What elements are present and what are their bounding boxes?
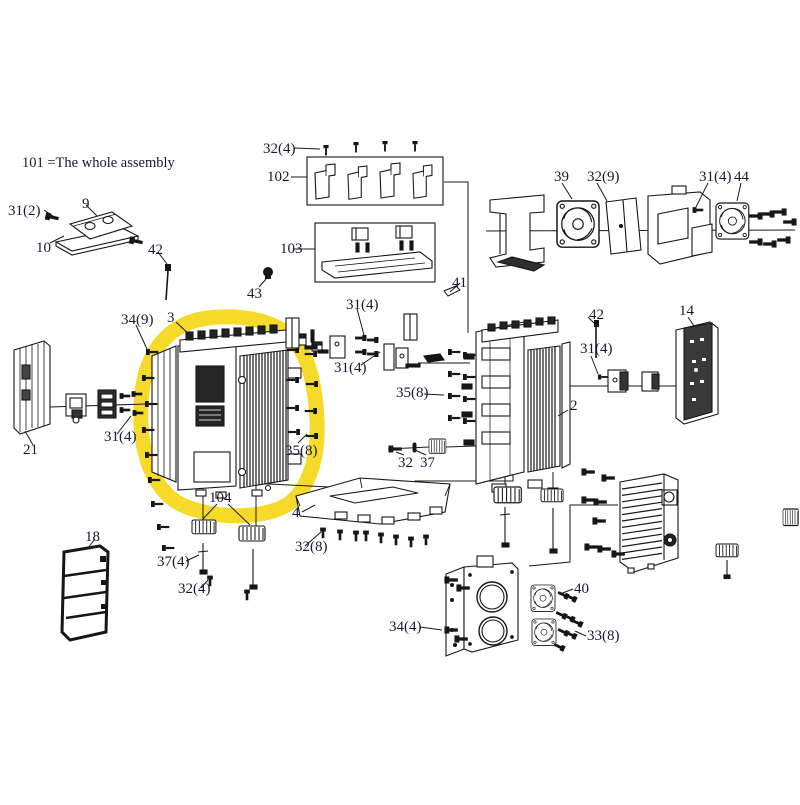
label-32-8: 32(8) [295, 540, 328, 555]
label-103: 103 [280, 242, 303, 257]
label-104: 104 [209, 491, 232, 506]
fan-40-drawing-b [532, 619, 556, 645]
label-35-8-right: 35(8) [396, 386, 429, 401]
part-18-frame [62, 546, 108, 640]
label-4: 4 [292, 506, 300, 521]
label-39: 39 [554, 170, 569, 185]
fan-assembly-top-right [490, 186, 796, 271]
label-3: 3 [167, 311, 175, 326]
label-31-4-tr: 31(4) [699, 170, 732, 185]
diagram-title: 101 =The whole assembly [22, 156, 175, 171]
label-41: 41 [452, 276, 467, 291]
screws-33-8 [553, 590, 583, 651]
label-34-9: 34(9) [121, 313, 154, 328]
label-32-4-top: 32(4) [263, 142, 296, 157]
label-31-2: 31(2) [8, 204, 41, 219]
label-102: 102 [267, 170, 290, 185]
label-31-4-right: 31(4) [580, 342, 613, 357]
fan-40-drawing-a [531, 585, 555, 611]
label-32: 32 [398, 456, 413, 471]
box-102 [307, 141, 443, 205]
label-42-left: 42 [148, 243, 163, 258]
label-44: 44 [734, 170, 749, 185]
label-33-8: 33(8) [587, 629, 620, 644]
heatsink [582, 469, 678, 573]
handle-assembly-9-10 [45, 212, 142, 255]
label-2: 2 [570, 399, 578, 414]
label-31-4-mid-low: 31(4) [334, 361, 367, 376]
fan-44-drawing [716, 203, 749, 239]
part-14-panel [676, 322, 718, 424]
label-34-4: 34(4) [389, 620, 422, 635]
fan-housing-drawing [648, 186, 712, 264]
label-43: 43 [247, 287, 262, 302]
label-32-4-bottom: 32(4) [178, 582, 211, 597]
pin-42-left [165, 264, 171, 300]
label-37-4: 37(4) [157, 555, 190, 570]
label-31-4-left: 31(4) [104, 430, 137, 445]
fan-39-drawing [557, 201, 599, 247]
label-31-4-mid-top: 31(4) [346, 298, 379, 313]
label-18: 18 [85, 530, 100, 545]
parts-diagram-page: { "d": { "title": "101 =The whole assemb… [0, 0, 800, 800]
label-14: 14 [679, 304, 694, 319]
part-21-panel [14, 341, 143, 434]
knob-43 [263, 267, 273, 279]
box-103 [315, 223, 435, 282]
label-42-right: 42 [589, 308, 604, 323]
label-9: 9 [82, 197, 90, 212]
part-2-housing [462, 317, 570, 498]
base-frame-4 [296, 478, 450, 547]
label-10: 10 [36, 241, 51, 256]
label-40: 40 [574, 582, 589, 597]
diagram-stage: 101 =The whole assembly 31(2) 9 10 42 43… [0, 0, 800, 800]
bracket-34-4 [445, 556, 583, 656]
label-35-8-left: 35(8) [285, 444, 318, 459]
connector-blocks-right [608, 370, 659, 392]
panel-32-9-drawing [606, 198, 641, 254]
label-37: 37 [420, 456, 435, 471]
label-32-9: 32(9) [587, 170, 620, 185]
label-21: 21 [23, 443, 38, 458]
